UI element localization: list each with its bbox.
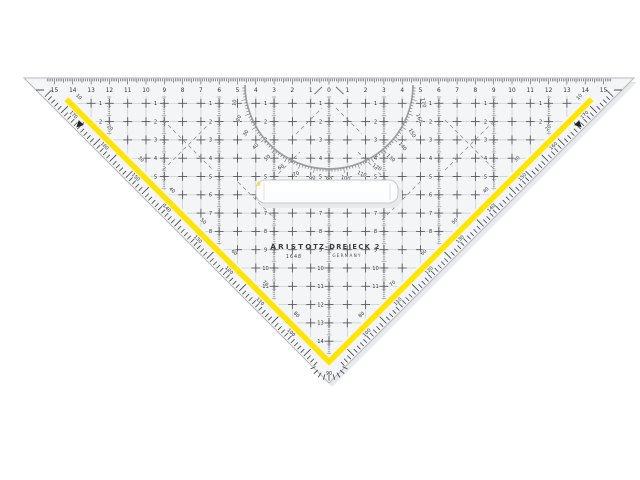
svg-text:5: 5 [484,174,487,180]
svg-text:8: 8 [181,88,185,94]
svg-text:2: 2 [484,119,487,125]
svg-text:2: 2 [429,119,432,125]
removable-handle [256,180,402,208]
svg-text:12: 12 [317,302,324,308]
svg-text:10: 10 [508,88,516,94]
svg-text:3: 3 [272,88,276,94]
svg-text:11: 11 [372,284,379,290]
svg-text:1: 1 [209,101,212,107]
svg-text:12: 12 [545,88,553,94]
svg-text:5: 5 [429,174,432,180]
svg-text:13: 13 [563,88,571,94]
svg-text:8: 8 [319,229,322,235]
svg-text:3: 3 [154,138,157,144]
svg-text:2: 2 [539,119,542,125]
svg-text:14: 14 [69,88,77,94]
svg-text:7: 7 [264,211,267,217]
svg-text:2: 2 [364,88,368,94]
tz-triangle-ruler: 1212345123456781234567891011123456789101… [0,0,640,480]
brand-text: ARISTO [270,242,313,251]
svg-text:3: 3 [319,138,322,144]
model-number-text: 1648 [286,254,302,260]
svg-text:3: 3 [382,88,386,94]
svg-text:1: 1 [345,88,349,94]
svg-text:1: 1 [309,88,313,94]
svg-text:2: 2 [291,88,295,94]
svg-text:8: 8 [474,88,478,94]
svg-text:3: 3 [429,138,432,144]
svg-text:7: 7 [199,88,203,94]
svg-text:5: 5 [209,174,212,180]
svg-text:6: 6 [429,193,432,199]
svg-text:4: 4 [254,88,258,94]
svg-text:7: 7 [429,211,432,217]
product-name-text: TZ-DREIECK 2 [313,243,381,251]
product-photo: 1212345123456781234567891011123456789101… [0,0,640,480]
svg-text:6: 6 [437,88,441,94]
svg-text:14: 14 [582,88,590,94]
svg-text:5: 5 [374,174,377,180]
svg-text:1: 1 [319,101,322,107]
svg-text:11: 11 [317,284,324,290]
svg-text:1: 1 [429,101,432,107]
svg-text:2: 2 [264,119,267,125]
country-text: GERMANY [332,253,361,258]
svg-text:1: 1 [99,101,102,107]
svg-text:15: 15 [51,88,59,94]
svg-text:10: 10 [372,266,379,272]
svg-text:5: 5 [154,174,157,180]
svg-text:2: 2 [99,119,102,125]
svg-text:7: 7 [319,211,322,217]
svg-text:7: 7 [209,211,212,217]
svg-text:8: 8 [264,229,267,235]
svg-text:4: 4 [400,88,404,94]
svg-text:1: 1 [374,101,377,107]
svg-text:12: 12 [106,88,114,94]
svg-text:11: 11 [124,88,132,94]
svg-text:5: 5 [264,174,267,180]
svg-text:3: 3 [484,138,487,144]
svg-text:15: 15 [600,88,608,94]
svg-text:1: 1 [539,101,542,107]
svg-text:10: 10 [262,266,269,272]
svg-text:13: 13 [87,88,95,94]
svg-text:6: 6 [217,88,221,94]
svg-text:2: 2 [374,119,377,125]
svg-text:13: 13 [317,321,324,327]
svg-text:3: 3 [209,138,212,144]
svg-text:9: 9 [162,88,166,94]
svg-text:5: 5 [319,174,322,180]
svg-text:7: 7 [455,88,459,94]
right-angle-label: 90 [326,371,332,377]
svg-text:10: 10 [317,266,324,272]
svg-text:1: 1 [154,101,157,107]
svg-text:8: 8 [374,229,377,235]
svg-text:5: 5 [419,88,423,94]
ruler-rendered-layers: 1212345123456781234567891011123456789101… [24,78,637,387]
svg-text:0: 0 [327,88,331,94]
svg-text:3: 3 [374,138,377,144]
svg-text:10: 10 [142,88,150,94]
svg-text:11: 11 [527,88,535,94]
svg-text:7: 7 [374,211,377,217]
svg-text:2: 2 [209,119,212,125]
svg-text:2: 2 [154,119,157,125]
svg-text:1: 1 [484,101,487,107]
svg-text:9: 9 [492,88,496,94]
svg-text:1: 1 [264,101,267,107]
svg-text:2: 2 [319,119,322,125]
svg-text:5: 5 [236,88,240,94]
svg-text:14: 14 [317,339,324,345]
svg-text:6: 6 [209,193,212,199]
svg-text:10: 10 [231,99,238,106]
svg-text:8: 8 [429,229,432,235]
svg-text:9: 9 [264,248,267,254]
svg-text:8: 8 [209,229,212,235]
